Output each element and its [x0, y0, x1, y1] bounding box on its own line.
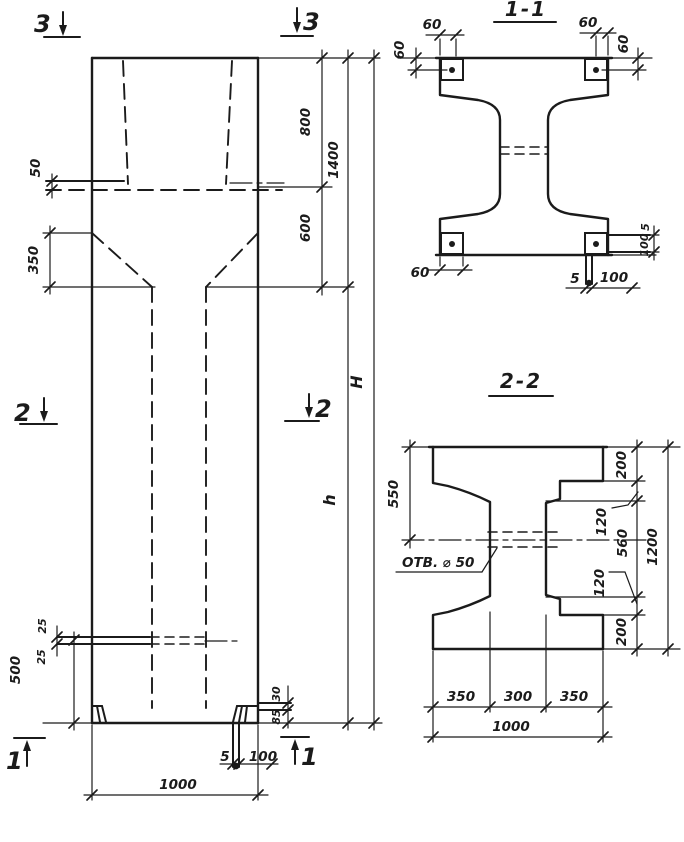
dim-label-600: 600 [298, 214, 314, 242]
section-marker-1-right: 1 [281, 737, 318, 771]
web-hole [402, 532, 648, 547]
column-outline [92, 58, 258, 723]
section-1-1-outline [398, 58, 656, 255]
dim-label-560: 560 [615, 529, 631, 557]
dim-label-85: 85 [270, 709, 283, 725]
dim-label-550: 550 [386, 480, 402, 508]
dim-label-200-t: 200 [614, 451, 630, 479]
dim-label-30: 30 [270, 686, 283, 702]
section-marker-1-left: 1 [6, 738, 45, 775]
hidden-lines [46, 61, 284, 708]
dim-label-120-b: 120 [592, 569, 608, 597]
marker-label: 2 [315, 395, 332, 423]
dim-label-5-r: 5 [639, 223, 652, 231]
section-1-1-title: 1-1 [494, 0, 556, 22]
section-title: 2-2 [500, 369, 542, 393]
dim-label-60-tl-v: 60 [392, 41, 408, 60]
dim-label-60-tl-h: 60 [423, 17, 442, 33]
dim-label-25b: 25 [35, 649, 48, 665]
elevation-dimension-labels: 50 350 800 1400 600 h H 25 25 500 30 85 … [8, 108, 366, 793]
marker-label: 1 [6, 747, 23, 775]
section-title: 1-1 [505, 0, 547, 21]
section-marker-2-left: 2 [14, 398, 57, 427]
drawing-sheet: 3 3 2 2 1 [0, 0, 684, 842]
section-1-1-dimension-lines [408, 33, 659, 288]
dim-label-100: 100 [249, 749, 277, 765]
marker-label: 3 [303, 8, 320, 36]
marker-label: 3 [34, 10, 51, 38]
web-hole-hidden [500, 147, 548, 154]
dim-label-1000: 1000 [492, 719, 530, 735]
section-1-1: 1-1 [392, 0, 659, 293]
section-2-2-dimension-labels: 550 200 120 560 120 200 1200 350 300 350… [386, 451, 661, 735]
dim-label-60-tr-v: 60 [616, 35, 632, 54]
dim-label-100-b: 100 [600, 270, 628, 286]
embedded-plates [441, 59, 607, 254]
dim-label-1400: 1400 [326, 141, 342, 179]
dim-label-5-b: 5 [570, 271, 579, 287]
dim-label-800: 800 [298, 108, 314, 136]
elevation-view: 3 3 2 2 1 [6, 8, 382, 800]
marker-label: 1 [301, 743, 318, 771]
dim-label-25a: 25 [36, 618, 49, 634]
section-marker-2-right: 2 [285, 394, 332, 423]
dim-label-1200: 1200 [645, 528, 661, 566]
hole-label: ОТВ. ⌀ 50 [402, 555, 474, 571]
dim-label-h: h [320, 494, 339, 505]
dim-label-1000: 1000 [159, 777, 197, 793]
section-2-2-outline [402, 447, 680, 649]
dim-label-60-tr-h: 60 [579, 15, 598, 31]
dim-label-60-bl: 60 [411, 265, 430, 281]
section-2-2: 2-2 ОТВ. ⌀ 50 [386, 369, 680, 742]
dim-label-H: H [347, 375, 366, 389]
dim-label-350-l: 350 [447, 689, 475, 705]
base-feet [93, 706, 257, 722]
section-marker-3-left: 3 [34, 10, 80, 38]
slot-lines [57, 637, 237, 644]
dim-label-350: 350 [26, 246, 42, 274]
dim-label-100-r: 100 [638, 233, 651, 256]
section-2-2-title: 2-2 [489, 369, 553, 396]
section-marker-3-right: 3 [281, 8, 320, 36]
dim-label-5: 5 [220, 749, 229, 765]
dim-label-300: 300 [504, 689, 532, 705]
dim-label-350-r: 350 [560, 689, 588, 705]
dim-label-50: 50 [28, 159, 44, 178]
dim-label-500: 500 [8, 656, 24, 684]
dim-label-200-b: 200 [614, 618, 630, 646]
drawing-canvas: 3 3 2 2 1 [0, 0, 684, 842]
hole-callout: ОТВ. ⌀ 50 [396, 548, 497, 572]
dim-label-120-t: 120 [594, 508, 610, 536]
section-1-1-dimension-labels: 60 60 60 60 60 5 100 5 100 [392, 15, 652, 287]
marker-label: 2 [14, 399, 31, 427]
